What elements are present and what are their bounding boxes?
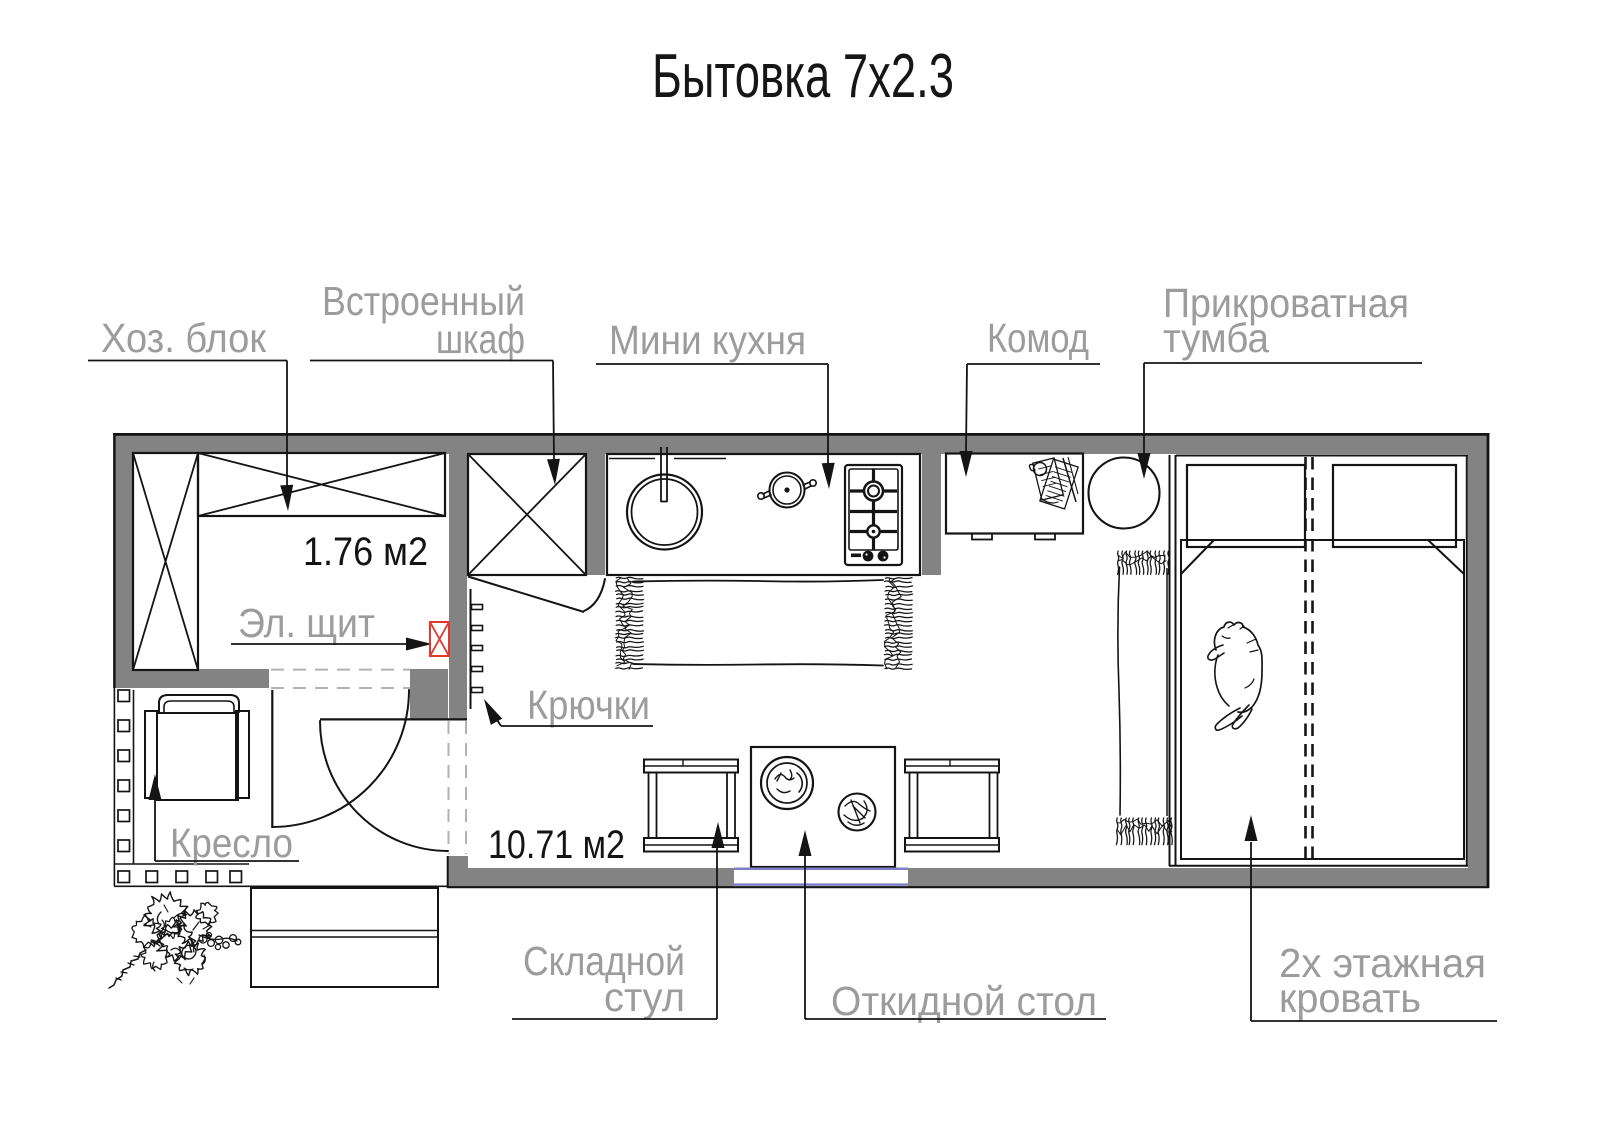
svg-text:кровать: кровать bbox=[1279, 975, 1421, 1021]
svg-text:Бытовка 7х2.3: Бытовка 7х2.3 bbox=[652, 42, 954, 111]
svg-text:Крючки: Крючки bbox=[527, 682, 650, 728]
svg-text:Хоз. блок: Хоз. блок bbox=[101, 315, 267, 361]
svg-text:Откидной стол: Откидной стол bbox=[831, 978, 1097, 1024]
svg-text:1.76 м2: 1.76 м2 bbox=[303, 530, 428, 574]
svg-text:шкаф: шкаф bbox=[436, 316, 525, 362]
svg-text:Мини кухня: Мини кухня bbox=[609, 317, 806, 363]
svg-text:тумба: тумба bbox=[1163, 315, 1269, 361]
svg-text:Комод: Комод bbox=[987, 315, 1089, 361]
svg-text:Эл. щит: Эл. щит bbox=[238, 600, 375, 646]
svg-text:Кресло: Кресло bbox=[170, 820, 293, 866]
svg-text:10.71 м2: 10.71 м2 bbox=[488, 823, 625, 867]
svg-text:стул: стул bbox=[604, 974, 685, 1020]
